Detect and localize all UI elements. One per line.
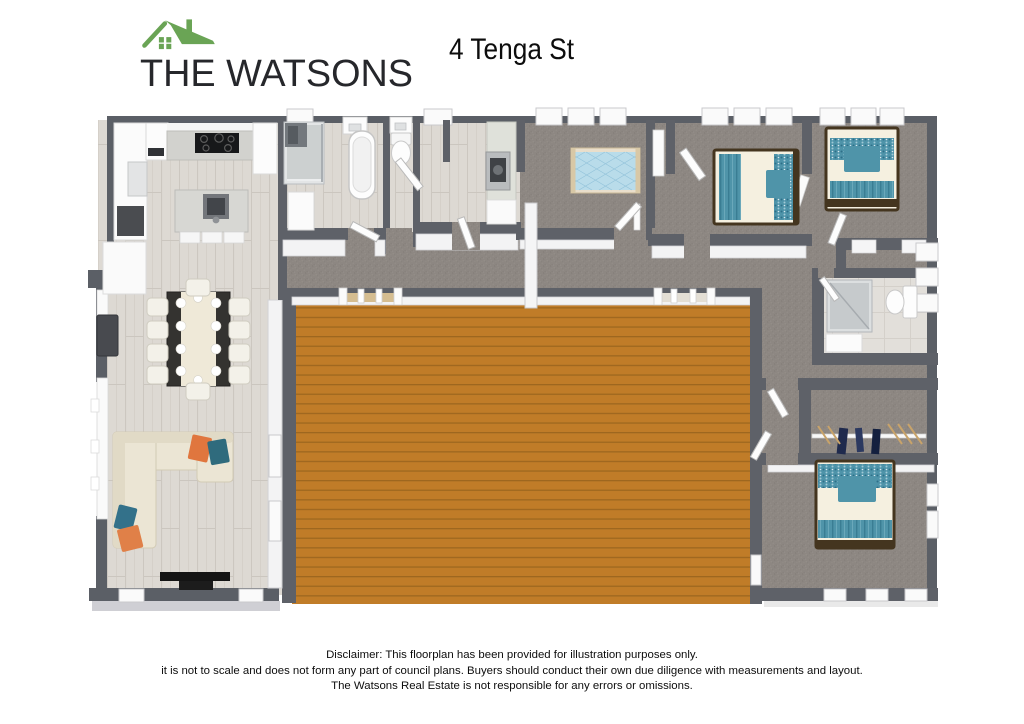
svg-text:Disclaimer: This floorplan has: Disclaimer: This floorplan has been prov… [326,649,698,661]
svg-text:it is not to scale and does no: it is not to scale and does not form any… [161,665,863,677]
svg-text:THE WATSONS: THE WATSONS [140,53,413,95]
svg-text:4 Tenga St: 4 Tenga St [449,33,575,66]
svg-text:The Watsons Real Estate is not: The Watsons Real Estate is not responsib… [331,680,693,692]
